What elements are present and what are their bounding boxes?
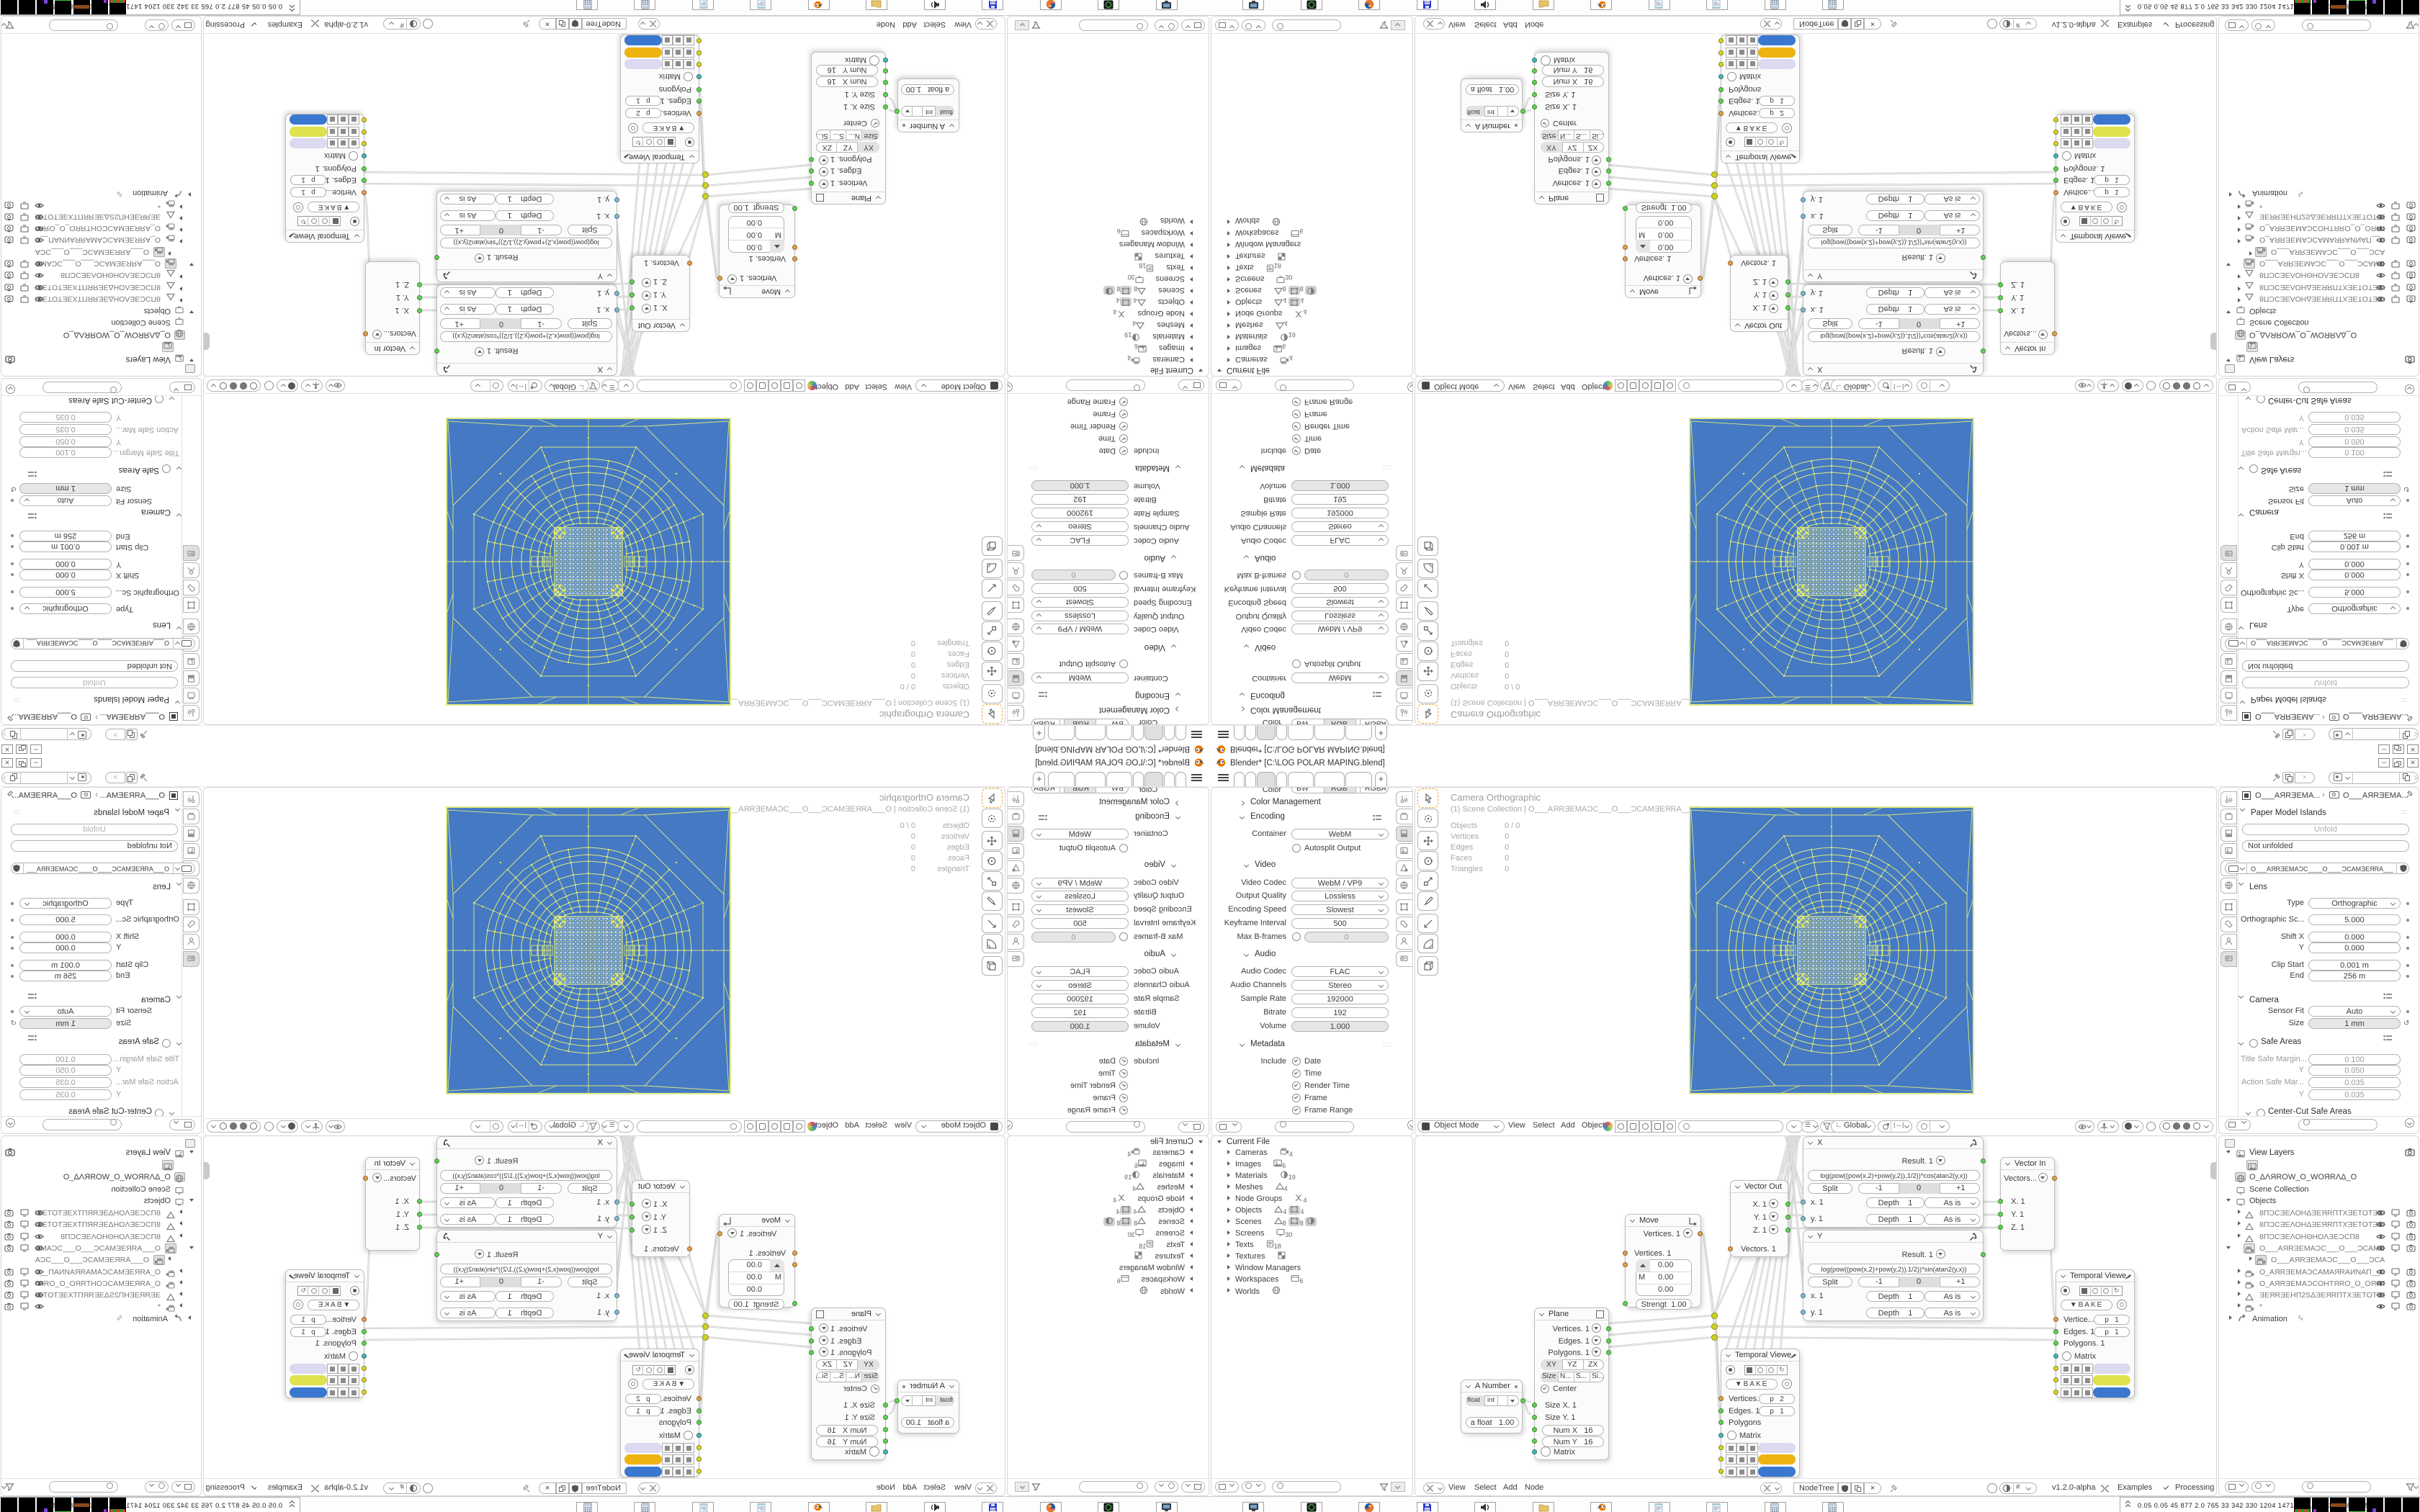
svg-text:64: 64 bbox=[1425, 1, 1429, 4]
svg-text:64: 64 bbox=[991, 1508, 995, 1511]
svg-text:64: 64 bbox=[1425, 1508, 1429, 1511]
svg-text:64: 64 bbox=[991, 1, 995, 4]
